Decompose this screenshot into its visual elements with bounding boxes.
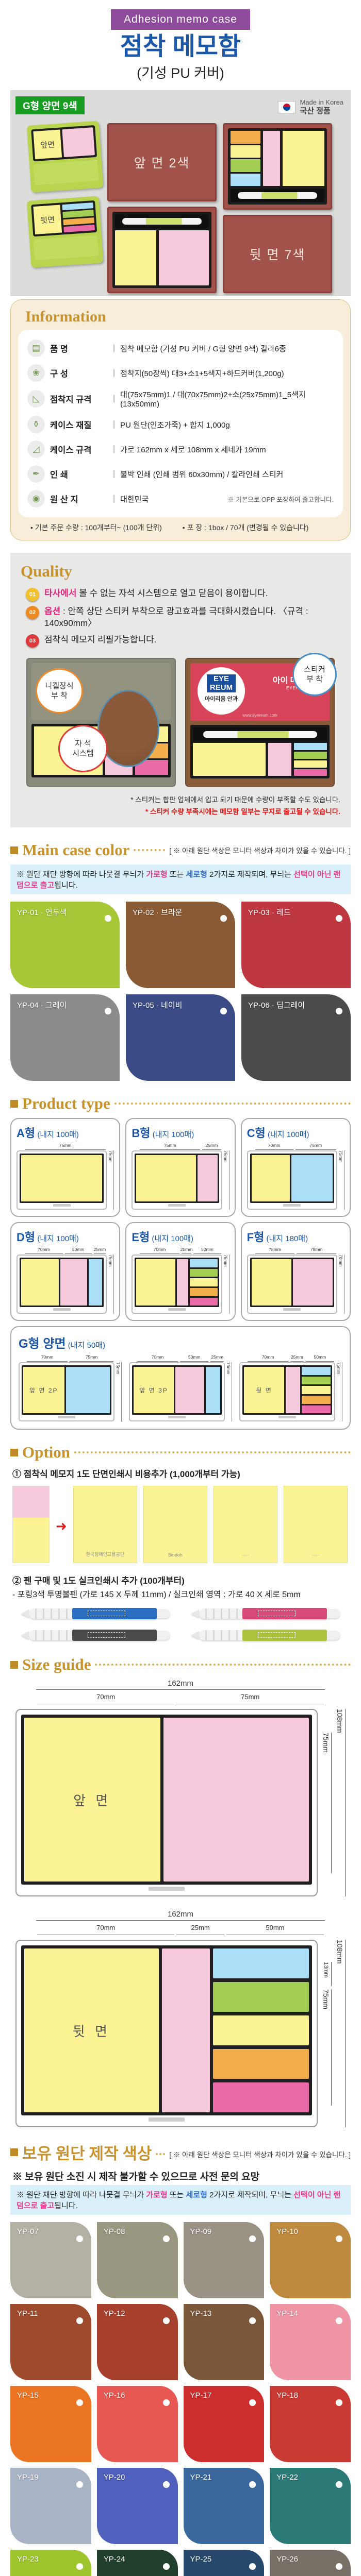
type-badge: G형 양면 9색 <box>15 96 85 114</box>
section-bullet-icon <box>10 1100 18 1108</box>
swatch-hole <box>163 2563 170 2570</box>
swatch-hole <box>76 2481 83 2488</box>
sticker-clinic-name: 아이리움 안과 <box>198 694 245 703</box>
swatch-code: YP-12 <box>104 2309 125 2318</box>
size-guide-title: Size guide <box>22 1655 91 1674</box>
memo-stripes <box>302 1367 331 1413</box>
swatch-code: YP-06 · 딥그레이 <box>248 999 305 1010</box>
swatch-hole <box>163 2399 170 2406</box>
memo-pad-pink <box>198 1155 218 1201</box>
magnifier-detail <box>97 690 159 767</box>
memo-pad-pink <box>263 131 280 186</box>
fabric-swatch: YP-14 <box>270 2304 351 2380</box>
sticker-brand: EYEREUM <box>207 674 236 692</box>
info-row-label: 구 성 <box>50 367 108 379</box>
dotted-leader <box>156 2153 165 2155</box>
swatch-hole <box>163 2481 170 2488</box>
quality-text: 볼 수 없는 자석 시스템으로 열고 닫음이 용이합니다. <box>77 588 268 598</box>
info-row-value: 대한민국 <box>120 494 149 504</box>
pen-barrel <box>72 1608 157 1619</box>
pen-grip <box>199 1608 242 1619</box>
case-diagram-back: 뒷 면 <box>15 1940 318 2127</box>
made-in-line2: 국산 정품 <box>300 107 330 115</box>
option-print-samples: ➜ 한국장애인고용공단 Sindoh ····· ····· <box>12 1486 349 1563</box>
silk-print-area <box>258 1611 296 1616</box>
fabric-swatch: YP-13 <box>184 2304 265 2380</box>
total-width-dim: 162mm <box>36 1679 325 1690</box>
quality-item: 01 타사에서 볼 수 없는 자석 시스템으로 열고 닫음이 용이합니다. <box>26 588 340 601</box>
sticker-note-2: * 스티커 수량 부족시에는 메모함 일부는 무지로 출고될 수 있습니다. <box>21 806 340 816</box>
info-row-separator: | <box>113 420 115 429</box>
option-header: Option <box>10 1443 351 1462</box>
fabric-swatch: YP-12 <box>97 2304 178 2380</box>
memo-pad-pink <box>286 1367 300 1413</box>
memo-pad-pink <box>60 1259 87 1306</box>
swatch-hole <box>336 2235 342 2242</box>
swatch-hole <box>336 2317 342 2324</box>
fabric-swatch: YP-08 <box>97 2222 178 2298</box>
pen-grip <box>199 1630 242 1640</box>
swatch-hole <box>163 2317 170 2324</box>
quality-section: Quality 01 타사에서 볼 수 없는 자석 시스템으로 열고 닫음이 용… <box>10 553 351 827</box>
sample-logo: 한국장애인고용공단 <box>86 1551 125 1557</box>
order-min-note: • 기본 주문 수량 : 100개부터~ (100개 단위) <box>30 522 162 533</box>
memo-sample-printed: 한국장애인고용공단 <box>73 1486 137 1563</box>
fabric-colors-header: 보유 원단 제작 색상 [ ※ 아래 원단 색상은 모니터 색상과 차이가 있을… <box>10 2141 351 2164</box>
memo-stripes <box>62 202 95 232</box>
quality-item: 03 점착식 메모지 리필가능합니다. <box>26 634 340 648</box>
pen-end <box>157 1631 170 1640</box>
info-row-label: 케이스 재질 <box>50 418 108 431</box>
color-swatch: YP-02 · 브라운 <box>126 902 235 988</box>
swatch-hole <box>336 1008 342 1014</box>
info-row: ⚱ 케이스 재질 | PU 원단(인조가죽) + 합지 1,000g <box>27 412 334 437</box>
quality-number-badge: 03 <box>26 634 39 648</box>
ballpoint-pen <box>21 1607 170 1620</box>
case-diagram <box>132 1255 222 1314</box>
case-diagram <box>17 1150 107 1210</box>
section-bullet-icon <box>10 2148 18 2156</box>
memo-sample-small <box>12 1486 50 1563</box>
info-row-icon: ✒ <box>27 465 45 483</box>
pen <box>203 731 317 738</box>
main-color-swatches: YP-01 · 연두색 YP-02 · 브라운 YP-03 · 레드 YP-04… <box>10 902 351 1081</box>
stripe-height-dim: 13mm <box>322 1962 332 1986</box>
swatch-code: YP-11 <box>17 2309 38 2318</box>
memo-pad-yellow <box>252 1259 291 1306</box>
info-row-label: 원 산 지 <box>50 493 108 505</box>
made-in-line1: Made in Korea <box>300 98 343 106</box>
pen-grip <box>29 1630 72 1640</box>
monitor-color-note: [ ※ 아래 원단 색상은 모니터 색상과 차이가 있을 수 있습니다. ] <box>169 2149 351 2159</box>
memo-pad-pink <box>159 230 209 285</box>
product-card-d: D형 (내지 100매) 70mm50mm25mm 75mm <box>10 1222 120 1321</box>
product-card-b: B형 (내지 100매) 75mm25mm 75mm <box>125 1118 235 1217</box>
ballpoint-pen <box>191 1607 340 1620</box>
silk-print-area <box>258 1632 296 1638</box>
swatch-hole <box>249 2481 256 2488</box>
pen-tip <box>191 1609 199 1618</box>
size-guide-header: Size guide <box>10 1655 351 1674</box>
case-diagram-front: 앞 면 <box>15 1709 318 1896</box>
pen-end <box>157 1609 170 1618</box>
color-swatch: YP-01 · 연두색 <box>10 902 120 988</box>
grain-pattern-note: ※ 원단 재단 방향에 따라 나뭇결 무늬가 가로형 또는 세로형 2가지로 제… <box>10 2185 351 2215</box>
open-case-back <box>223 123 332 210</box>
info-row-value: 가로 162mm x 세로 108mm x 세네카 19mm <box>120 444 266 455</box>
pen-tip <box>21 1609 29 1618</box>
fabric-stock-warning: ※ 보유 원단 소진 시 제작 불가할 수 있으므로 사전 문의 요망 <box>12 2169 349 2183</box>
case-diagram <box>132 1150 222 1210</box>
sample-logo: Sindoh <box>168 1552 183 1557</box>
swatch-hole <box>76 2399 83 2406</box>
grain-pattern-note: ※ 원단 재단 방향에 따라 나뭇결 무늬가 가로형 또는 세로형 2가지로 제… <box>10 865 351 894</box>
pen-grip <box>29 1608 72 1619</box>
fabric-swatch: YP-21 <box>184 2468 265 2544</box>
case-photo-sticker: 스티커부 착 EYEREUM 아이리움 안과 아이 따뜻하게! EYEREUM … <box>185 658 335 787</box>
color-swatch: YP-04 · 그레이 <box>10 994 120 1081</box>
pen <box>238 192 318 199</box>
swatch-hole <box>336 2399 342 2406</box>
info-row-separator: | <box>113 494 115 503</box>
product-card-a: A형 (내지 100매) 75mm 75mm <box>10 1118 120 1217</box>
page-title: 점착 메모함 <box>0 34 361 60</box>
swatch-hole <box>163 2235 170 2242</box>
info-row: ✒ 인 쇄 | 불박 인쇄 (인쇄 범위 60x30mm) / 칼라인쇄 스티커 <box>27 462 334 486</box>
memo-pad-blue <box>291 1155 333 1201</box>
sticker-note-1: * 스티커는 합판 업체에서 입고 되기 때문에 수량이 부족할 수도 있습니다… <box>21 794 340 804</box>
information-panel: ▤ 품 명 | 점착 메모함 (기성 PU 커버 / G형 양면 9색) 칼라6… <box>18 330 343 517</box>
memo-stripes <box>190 1259 218 1306</box>
swatch-code: YP-25 <box>190 2555 212 2564</box>
sample-logo: ····· <box>311 1552 319 1557</box>
option-item-2: ② 펜 구매 및 1도 실크인쇄시 추가 (100개부터) <box>12 1573 349 1586</box>
memo-stripes <box>213 1948 309 2112</box>
back-chip: 뒷면 <box>33 205 62 234</box>
red-case-back-group: 뒷 면 7색 <box>223 123 332 293</box>
arrow-icon: ➜ <box>56 1518 67 1534</box>
memo-sample-printed: Sindoh <box>143 1486 207 1563</box>
option-title: Option <box>22 1443 70 1462</box>
swatch-code: YP-13 <box>190 2309 212 2318</box>
info-row-label: 점착지 규격 <box>50 393 108 405</box>
swatch-hole <box>76 2317 83 2324</box>
fabric-swatch: YP-16 <box>97 2386 178 2462</box>
main-case-color-title: Main case color <box>22 841 129 859</box>
quality-number-badge: 02 <box>26 606 39 619</box>
monitor-color-note: [ ※ 아래 원단 색상은 모니터 색상과 차이가 있을 수 있습니다. ] <box>169 845 351 855</box>
info-row: ◿ 케이스 규격 | 가로 162mm x 세로 108mm x 세네카 19m… <box>27 437 334 462</box>
green-case-back: 뒷면 <box>27 196 104 268</box>
case-photo-nickel: 니켈장식부 착 자 석시스템 <box>26 658 176 787</box>
case-height-dim: 108mm <box>336 1940 346 2127</box>
quality-text: : 안쪽 상단 스티커 부착으로 광고효과를 극대화시켰습니다. 〈규격 : 1… <box>44 606 308 628</box>
memo-pad-yellow <box>115 230 156 285</box>
swatch-hole <box>220 915 227 922</box>
category-banner: Adhesion memo case <box>111 9 250 30</box>
hero-cases: 앞면 뒷면 앞 면 2색 <box>10 90 351 293</box>
back-cover-label: 뒷 면 7색 <box>223 215 332 293</box>
quality-text: 점착식 메모지 리필가능합니다. <box>44 635 157 645</box>
option-item-1: ① 점착식 메모지 1도 단면인쇄시 비용추가 (1,000개부터 가능) <box>12 1467 349 1480</box>
swatch-code: YP-22 <box>276 2473 298 2482</box>
information-footnotes: • 기본 주문 수량 : 100개부터~ (100개 단위) • 포 장 : 1… <box>18 517 343 534</box>
fabric-swatch: YP-22 <box>270 2468 351 2544</box>
product-type-grid: A형 (내지 100매) 75mm 75mm B형 (내지 100매) 75mm… <box>10 1118 351 1321</box>
quality-title: Quality <box>21 562 340 581</box>
case-diagram <box>17 1255 107 1314</box>
swatch-code: YP-26 <box>276 2555 298 2564</box>
fabric-colors-title: 보유 원단 제작 색상 <box>22 2141 152 2164</box>
ballpoint-pen <box>21 1629 170 1642</box>
info-row: ◺ 점착지 규격 | 대(75x75mm)1 / 대(70x75mm)2+소(2… <box>27 385 334 412</box>
dotted-leader <box>134 849 165 851</box>
memo-pad-blue <box>206 1367 220 1413</box>
fabric-swatch: YP-25 <box>184 2550 265 2576</box>
sample-logo: ····· <box>241 1552 249 1557</box>
pen-slot <box>193 727 327 741</box>
fabric-swatch: YP-26 <box>270 2550 351 2576</box>
memo-pad-yellow <box>136 1155 196 1201</box>
pen-slot <box>231 189 324 202</box>
info-row-separator: | <box>113 344 115 353</box>
fabric-swatches: YP-07 YP-08 YP-09 YP-10 YP-11 YP-12 YP-1… <box>10 2222 351 2576</box>
packaging-note: • 포 장 : 1box / 70개 (변경될 수 있습니다) <box>183 522 309 533</box>
sticker-notes: * 스티커는 합판 업체에서 입고 되기 때문에 수량이 부족할 수도 있습니다… <box>21 794 340 816</box>
green-case-front: 앞면 <box>27 121 104 193</box>
swatch-code: YP-09 <box>190 2227 212 2236</box>
silk-print-area <box>88 1632 126 1638</box>
case-diagram <box>247 1150 337 1210</box>
info-row-value: PU 원단(인조가죽) + 합지 1,000g <box>120 419 230 430</box>
swatch-code: YP-14 <box>276 2309 298 2318</box>
memo-pad-yellow: 뒷 면 <box>244 1367 284 1413</box>
info-row-value: 점착지(50장씩) 대3+소1+5색지+하드커버(1,200g) <box>120 368 284 379</box>
memo-stripes <box>231 131 260 186</box>
memo-pad-yellow: 앞 면 <box>24 1718 160 1882</box>
swatch-hole <box>249 2235 256 2242</box>
memo-sample-printed: ····· <box>214 1486 277 1563</box>
front-chip: 앞면 <box>33 130 62 159</box>
info-row: ❀ 구 성 | 점착지(50장씩) 대3+소1+5색지+하드커버(1,200g) <box>27 361 334 385</box>
korea-flag-icon <box>278 101 296 113</box>
dotted-leader <box>95 1664 351 1666</box>
memo-pad-yellow <box>21 1155 102 1201</box>
swatch-code: YP-02 · 브라운 <box>133 907 182 918</box>
fabric-swatch: YP-15 <box>10 2386 91 2462</box>
swatch-code: YP-18 <box>276 2391 298 2400</box>
swatch-code: YP-04 · 그레이 <box>17 999 67 1010</box>
section-bullet-icon <box>10 1449 18 1456</box>
swatch-code: YP-03 · 레드 <box>248 907 291 918</box>
memo-pad-yellow <box>252 1155 290 1201</box>
swatch-hole <box>220 1008 227 1014</box>
pad-height-dim: 75mm <box>322 1733 332 1873</box>
quality-highlight: 옵션 <box>44 606 60 616</box>
main-case-color-header: Main case color [ ※ 아래 원단 색상은 모니터 색상과 차이… <box>10 841 351 859</box>
size-guide-back: 162mm 70mm 25mm 50mm 뒷 면 13mm 75mm 108mm <box>15 1910 346 2127</box>
fabric-swatch: YP-19 <box>10 2468 91 2544</box>
swatch-hole <box>336 2481 342 2488</box>
product-type-header: Product type <box>10 1094 351 1113</box>
memo-pad-pink <box>293 1259 333 1306</box>
memo-pad-yellow <box>193 743 266 776</box>
magnet-bubble: 자 석시스템 <box>58 725 108 772</box>
quality-photos: 니켈장식부 착 자 석시스템 스티커부 착 EYEREUM 아이리움 안 <box>21 658 340 787</box>
swatch-hole <box>105 915 111 922</box>
info-row-separator: | <box>113 368 115 378</box>
memo-pad-pink <box>175 1367 204 1413</box>
fabric-swatch: YP-07 <box>10 2222 91 2298</box>
info-row-icon: ◺ <box>27 390 45 408</box>
fabric-swatch: YP-18 <box>270 2386 351 2462</box>
quality-number-badge: 01 <box>26 588 39 601</box>
info-row-value: 불박 인쇄 (인쇄 범위 60x30mm) / 칼라인쇄 스티커 <box>120 469 283 480</box>
swatch-hole <box>336 2563 342 2570</box>
pen-samples <box>21 1607 340 1642</box>
swatch-hole <box>249 2563 256 2570</box>
pen-end <box>327 1609 340 1618</box>
pad-height-dim: 75mm <box>322 1989 332 2106</box>
memo-sample-printed: ····· <box>284 1486 348 1563</box>
pen-barrel <box>72 1630 157 1641</box>
product-type-title: Product type <box>22 1094 110 1113</box>
info-row-icon: ❀ <box>27 364 45 382</box>
memo-pad-yellow: 앞 면 2P <box>23 1367 64 1413</box>
nickel-bubble: 니켈장식부 착 <box>36 668 83 714</box>
fabric-swatch: YP-10 <box>270 2222 351 2298</box>
swatch-hole <box>76 2563 83 2570</box>
info-row-label: 케이스 규격 <box>50 443 108 455</box>
page-subtitle: (기성 PU 커버) <box>0 62 361 82</box>
g-diagram-back: 70mm25mm50mm 뒷 면 75mm <box>239 1354 342 1421</box>
info-row-icon: ◉ <box>27 490 45 507</box>
memo-pad-pink <box>162 1948 210 2112</box>
swatch-hole <box>105 1008 111 1014</box>
fabric-swatch: YP-23 <box>10 2550 91 2576</box>
memo-pad-blue <box>66 1367 110 1413</box>
memo-stripes <box>294 743 327 776</box>
dotted-leader <box>114 1103 351 1105</box>
product-card-e: E형 (내지 100매) 70mm20mm50mm 75mm <box>125 1222 235 1321</box>
information-title: Information <box>18 307 343 330</box>
memo-pad-blue <box>89 1259 102 1306</box>
pen <box>122 218 202 225</box>
info-row: ▤ 품 명 | 점착 메모함 (기성 PU 커버 / G형 양면 9색) 칼라6… <box>27 336 334 361</box>
info-row-label: 인 쇄 <box>50 468 108 480</box>
product-card-c: C형 (내지 100매) 70mm75mm 75mm <box>241 1118 351 1217</box>
total-width-dim: 162mm <box>36 1910 325 1921</box>
swatch-code: YP-19 <box>17 2473 39 2482</box>
information-section: Information ▤ 품 명 | 점착 메모함 (기성 PU 커버 / G… <box>10 299 351 540</box>
info-row-separator: | <box>113 394 115 403</box>
quality-highlight: 타사에서 <box>44 588 77 598</box>
swatch-code: YP-08 <box>104 2227 125 2236</box>
swatch-code: YP-01 · 연두색 <box>17 907 67 918</box>
swatch-code: YP-16 <box>104 2391 125 2400</box>
swatch-code: YP-05 · 네이비 <box>133 999 182 1010</box>
info-row-label: 품 명 <box>50 342 108 354</box>
swatch-hole <box>249 2317 256 2324</box>
red-case-front-group: 앞 면 2색 <box>107 123 217 293</box>
memo-pad-pink <box>177 1259 188 1306</box>
size-guide-front: 162mm 70mm 75mm 앞 면 75mm 108mm <box>15 1679 346 1896</box>
info-row-note: ※ 기본으로 OPP 포장하여 출고합니다. <box>227 494 334 504</box>
color-swatch: YP-06 · 딥그레이 <box>241 994 351 1081</box>
option-item-2-detail: - 포링3색 투명볼펜 (가로 145 X 두께 11mm) / 실크인쇄 영역… <box>12 1587 349 1600</box>
info-row-icon: ⚱ <box>27 416 45 433</box>
open-case-front <box>107 207 217 293</box>
info-row-separator: | <box>113 445 115 454</box>
swatch-code: YP-24 <box>104 2555 125 2564</box>
silk-print-area <box>88 1611 126 1616</box>
swatch-code: YP-20 <box>104 2473 125 2482</box>
fabric-swatch: YP-09 <box>184 2222 265 2298</box>
info-row-value: 점착 메모함 (기성 PU 커버 / G형 양면 9색) 칼라6종 <box>120 343 286 354</box>
swatch-hole <box>249 2399 256 2406</box>
sticker-bubble: 스티커부 착 <box>292 653 337 696</box>
memo-pad-yellow: 앞 면 3P <box>134 1367 174 1413</box>
pen-tip <box>21 1631 29 1639</box>
swatch-code: YP-23 <box>17 2555 39 2564</box>
swatch-hole <box>336 915 342 922</box>
sticker-url: www.eyereum.com <box>190 713 330 718</box>
hero-product-photo: G형 양면 9색 Made in Korea국산 정품 앞면 뒷면 <box>10 90 351 296</box>
made-in-korea: Made in Korea국산 정품 <box>278 98 343 116</box>
section-bullet-icon <box>10 846 18 854</box>
info-row-icon: ◿ <box>27 440 45 458</box>
info-row-separator: | <box>113 469 115 479</box>
info-row: ◉ 원 산 지 | 대한민국 ※ 기본으로 OPP 포장하여 출고합니다. <box>27 486 334 511</box>
swatch-code: YP-21 <box>190 2473 212 2482</box>
swatch-hole <box>76 2235 83 2242</box>
ballpoint-pen <box>191 1629 340 1642</box>
quality-item: 02 옵션 : 안쪽 상단 스티커 부착으로 광고효과를 극대화시켰습니다. 〈… <box>26 606 340 630</box>
case-diagram <box>247 1255 337 1314</box>
swatch-code: YP-10 <box>276 2227 298 2236</box>
memo-pad-pink <box>163 1718 309 1882</box>
memo-pad-yellow <box>283 131 324 186</box>
memo-pad-pink <box>268 743 291 776</box>
color-swatch: YP-03 · 레드 <box>241 902 351 988</box>
fabric-swatch: YP-17 <box>184 2386 265 2462</box>
memo-pad-yellow <box>21 1259 59 1306</box>
product-card-g: G형 양면 (내지 50매) 70mm75mm 앞 면 2P 75mm 70mm… <box>10 1326 351 1430</box>
section-bullet-icon <box>10 1661 18 1669</box>
color-swatch: YP-05 · 네이비 <box>126 994 235 1081</box>
memo-pad-yellow: 뒷 면 <box>24 1948 159 2112</box>
info-row-icon: ▤ <box>27 340 45 357</box>
swatch-code: YP-17 <box>190 2391 212 2400</box>
swatch-code: YP-07 <box>17 2227 39 2236</box>
dotted-leader <box>74 1451 351 1453</box>
fabric-swatch: YP-11 <box>10 2304 91 2380</box>
pen-barrel <box>242 1630 327 1641</box>
fabric-swatch: YP-20 <box>97 2468 178 2544</box>
pen-barrel <box>242 1608 327 1619</box>
pen-end <box>327 1631 340 1640</box>
memo-pad-yellow <box>136 1259 175 1306</box>
product-card-f: F형 (내지 180매) 78mm78mm 78mm <box>241 1222 351 1321</box>
swatch-code: YP-15 <box>17 2391 39 2400</box>
memo-pad <box>62 127 95 157</box>
info-row-value: 대(75x75mm)1 / 대(70x75mm)2+소(25x75mm)1_5색… <box>120 389 329 409</box>
green-cases: 앞면 뒷면 <box>29 123 101 265</box>
fabric-swatch: YP-24 <box>97 2550 178 2576</box>
pen-tip <box>191 1631 199 1639</box>
g-diagram-front3p: 70mm50mm25mm 앞 면 3P 75mm <box>129 1354 232 1421</box>
g-diagram-front2p: 70mm75mm 앞 면 2P 75mm <box>19 1354 122 1421</box>
